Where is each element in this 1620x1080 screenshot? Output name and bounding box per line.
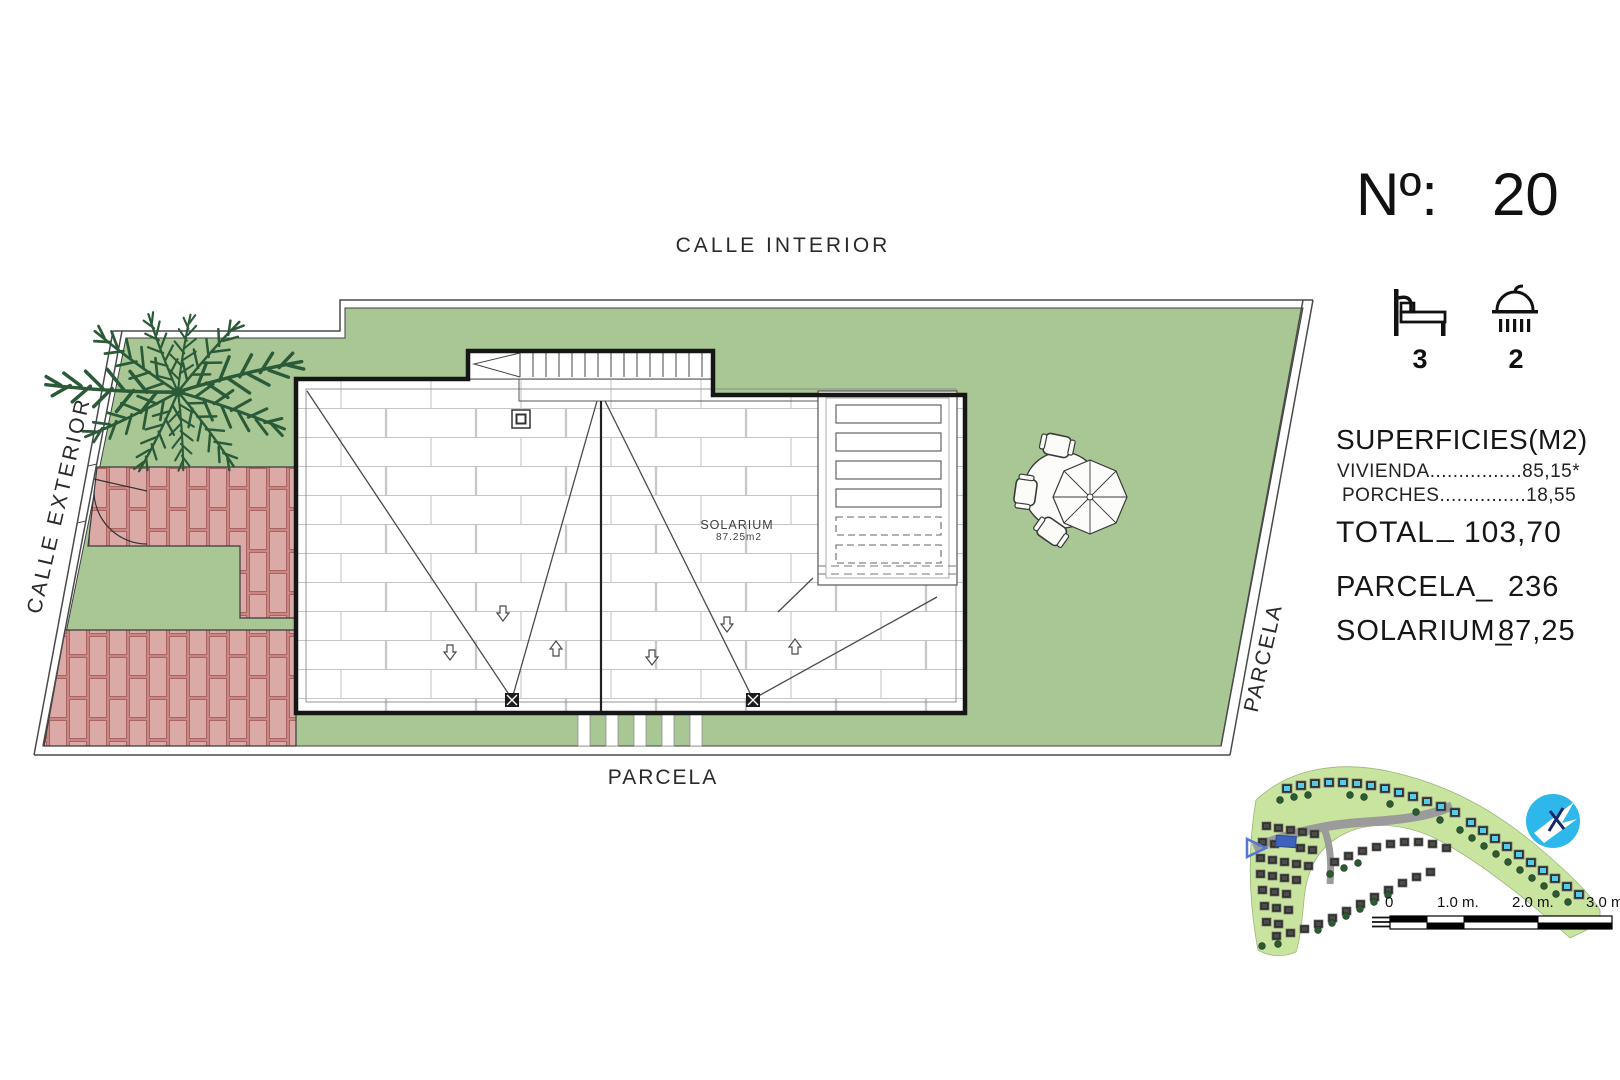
solarium-area-label: SOLARIUM_	[1336, 615, 1513, 648]
pergola-louvers	[818, 391, 957, 585]
bathrooms-count: 2	[1494, 344, 1538, 375]
solarium-room-area: 87.25m2	[689, 532, 789, 543]
scale-label-0: 0	[1385, 894, 1393, 911]
scale-label-1: 1.0 m.	[1437, 894, 1479, 911]
parasol	[1053, 460, 1127, 534]
bedrooms-count: 3	[1398, 344, 1442, 375]
minimap-plots-mid-row	[1330, 838, 1451, 866]
parcela-label: PARCELA_	[1336, 571, 1493, 604]
vivienda-line: VIVIENDA................85,15*	[1337, 461, 1580, 483]
total-value: 103,70	[1464, 516, 1562, 550]
solarium-area-value: 87,25	[1498, 615, 1576, 648]
skylight	[512, 410, 530, 428]
solarium-room-label: SOLARIUM	[687, 518, 787, 532]
porches-line: PORCHES...............18,55	[1342, 485, 1576, 507]
areas-title: SUPERFICIES(M2)	[1336, 424, 1588, 456]
shower-icon	[1490, 282, 1540, 340]
villa-number-value: 20	[1492, 160, 1559, 229]
total-label: TOTAL	[1336, 516, 1435, 550]
bed-icon	[1390, 284, 1450, 340]
parcel-label-bottom: PARCELA	[563, 766, 763, 790]
villa-number-label: Nº:	[1356, 160, 1438, 229]
site-plan-sheet: CALLE INTERIOR CALLE EXTERIOR PARCELA PA…	[0, 0, 1620, 1080]
north-arrow-logo	[1526, 794, 1580, 848]
highlighted-plot-20	[1276, 835, 1297, 847]
parcela-value: 236	[1508, 571, 1559, 604]
street-label-top: CALLE INTERIOR	[583, 234, 983, 258]
scale-bar	[1372, 916, 1612, 929]
scale-label-3: 3.0 m.	[1586, 894, 1620, 911]
scale-label-2: 2.0 m.	[1512, 894, 1554, 911]
building-roof	[296, 351, 965, 713]
total-separator: _	[1437, 510, 1455, 544]
brick-driveway	[44, 630, 296, 746]
